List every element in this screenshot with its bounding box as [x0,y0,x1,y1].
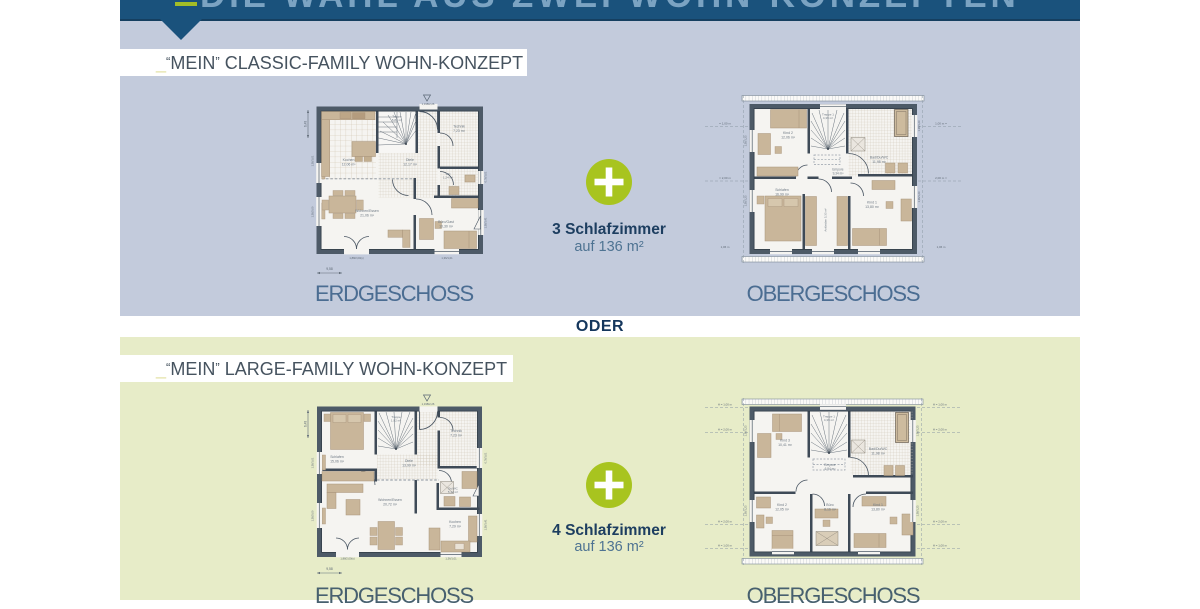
svg-text:H = 2,00 m: H = 2,00 m [933,520,948,524]
svg-text:Kind 3: Kind 3 [780,439,790,443]
svg-text:1,36/1,23: 1,36/1,23 [916,505,920,516]
svg-text:1,92 m²: 1,92 m² [391,419,401,423]
svg-text:Kochen: Kochen [449,520,461,524]
svg-text:12,06 m²: 12,06 m² [342,163,357,167]
svg-text:21,06 m²: 21,06 m² [360,214,375,218]
svg-text:5,82 m²: 5,82 m² [392,118,402,122]
svg-text:H = 1,00 m: H = 1,00 m [718,403,733,407]
svg-text:Kind 1: Kind 1 [867,201,877,205]
svg-text:1,36/1,23: 1,36/1,23 [744,425,748,436]
svg-text:Technik: Technik [450,429,462,433]
svg-text:15,06 m²: 15,06 m² [330,460,345,464]
svg-text:H = 1,00 m: H = 1,00 m [933,544,948,548]
svg-text:1,36/2,00: 1,36/2,00 [311,206,315,217]
svg-text:11,98 m²: 11,98 m² [871,452,885,456]
svg-text:9,34 m²: 9,34 m² [833,172,844,176]
svg-text:Ankleiden 5,33 m²: Ankleiden 5,33 m² [824,208,828,231]
svg-text:Kind 2: Kind 2 [783,131,793,135]
svg-text:12,17 m²: 12,17 m² [403,163,418,167]
svg-text:1,36/1,41: 1,36/1,41 [484,217,488,228]
svg-text:= 1,00 m: = 1,00 m [719,122,731,126]
svg-text:9,58: 9,58 [326,567,333,571]
svg-text:2,00 m =: 2,00 m = [935,176,947,180]
svg-text:1,36/1,01: 1,36/1,01 [441,256,453,260]
svg-text:Schlafen: Schlafen [775,188,789,192]
svg-text:Kind 1: Kind 1 [873,503,883,507]
svg-text:Technik: Technik [453,125,465,129]
svg-text:H = 1,00 m: H = 1,00 m [933,403,948,407]
svg-text:10,41 m²: 10,41 m² [778,443,793,447]
svg-text:6,48: 6,48 [304,421,308,427]
svg-text:Wohnen/Essen: Wohnen/Essen [355,209,379,213]
svg-text:H = 2,00 m: H = 2,00 m [718,428,733,432]
svg-text:H = 2,00 m: H = 2,00 m [718,520,733,524]
svg-text:0,76/1,01: 0,76/1,01 [484,452,488,463]
svg-text:8,16 m²: 8,16 m² [824,508,837,512]
svg-text:4,39 m²: 4,39 m² [823,116,833,120]
svg-text:Bad/Du/WC: Bad/Du/WC [870,156,889,160]
svg-text:1,06 m: 1,06 m [937,245,946,249]
svg-text:0,76/1,01: 0,76/1,01 [484,171,488,182]
svg-text:12,06 m²: 12,06 m² [781,136,796,140]
svg-text:Schlafen: Schlafen [330,455,344,459]
svg-text:12,05 m²: 12,05 m² [775,508,790,512]
svg-text:6,94 m²: 6,94 m² [825,467,836,471]
svg-text:9,58: 9,58 [326,267,333,271]
svg-text:1,06 m: 1,06 m [721,245,730,249]
svg-text:Büro: Büro [826,503,833,507]
svg-text:20,72 m²: 20,72 m² [383,503,398,507]
svg-text:Büro/Gast: Büro/Gast [438,220,454,224]
svg-text:= 2,00 m: = 2,00 m [719,176,731,180]
svg-text:1,88/2,00(s): 1,88/2,00(s) [340,557,354,561]
svg-text:7,23 m²: 7,23 m² [453,129,466,133]
svg-text:1,36/1,23: 1,36/1,23 [744,505,748,516]
svg-text:1,36/1,23: 1,36/1,23 [917,191,921,202]
svg-text:7,29 m²: 7,29 m² [449,525,462,529]
svg-text:1,198/2,26: 1,198/2,26 [422,402,435,406]
svg-text:1,198/2,26: 1,198/2,26 [422,102,435,106]
svg-text:Kind 2: Kind 2 [777,503,787,507]
svg-text:1,36/1,01: 1,36/1,01 [445,557,457,561]
svg-text:H = 1,00 m: H = 1,00 m [718,544,733,548]
svg-text:Wohnen/Essen: Wohnen/Essen [378,498,402,502]
svg-text:1,36/1,01: 1,36/1,01 [311,155,315,166]
svg-text:6,48: 6,48 [304,121,308,127]
svg-text:1,36/1,23: 1,36/1,23 [916,425,920,436]
svg-text:1,36/1,01: 1,36/1,01 [311,457,315,468]
svg-text:1,00 m =: 1,00 m = [935,122,947,126]
svg-text:1,36/2,00: 1,36/2,00 [311,510,315,521]
svg-text:1,36/1,41: 1,36/1,41 [484,519,488,530]
svg-text:4,39 m²: 4,39 m² [824,418,834,422]
svg-text:Kochen: Kochen [343,158,355,162]
svg-text:16,99 m²: 16,99 m² [775,193,790,197]
svg-text:1,88/2,00(s): 1,88/2,00(s) [349,256,363,260]
svg-text:5,12 m²: 5,12 m² [448,490,458,494]
svg-text:H = 2,00 m: H = 2,00 m [933,428,948,432]
svg-text:13,80 m²: 13,80 m² [871,508,886,512]
svg-text:Bad/Du/WC: Bad/Du/WC [869,447,888,451]
svg-text:1,36/1,23: 1,36/1,23 [744,135,748,146]
svg-text:13,80 m²: 13,80 m² [865,205,880,209]
svg-text:10,30 m²: 10,30 m² [439,225,454,229]
svg-text:1,24 m²: 1,24 m² [443,176,453,180]
svg-text:1,36/1,23: 1,36/1,23 [744,195,748,206]
svg-text:1,36/1,23: 1,36/1,23 [917,120,921,131]
svg-text:Diele: Diele [405,459,413,463]
svg-text:13,99 m²: 13,99 m² [402,464,417,468]
svg-text:Diele: Diele [406,158,414,162]
svg-text:11,98 m²: 11,98 m² [872,160,886,164]
svg-text:7,23 m²: 7,23 m² [450,434,463,438]
